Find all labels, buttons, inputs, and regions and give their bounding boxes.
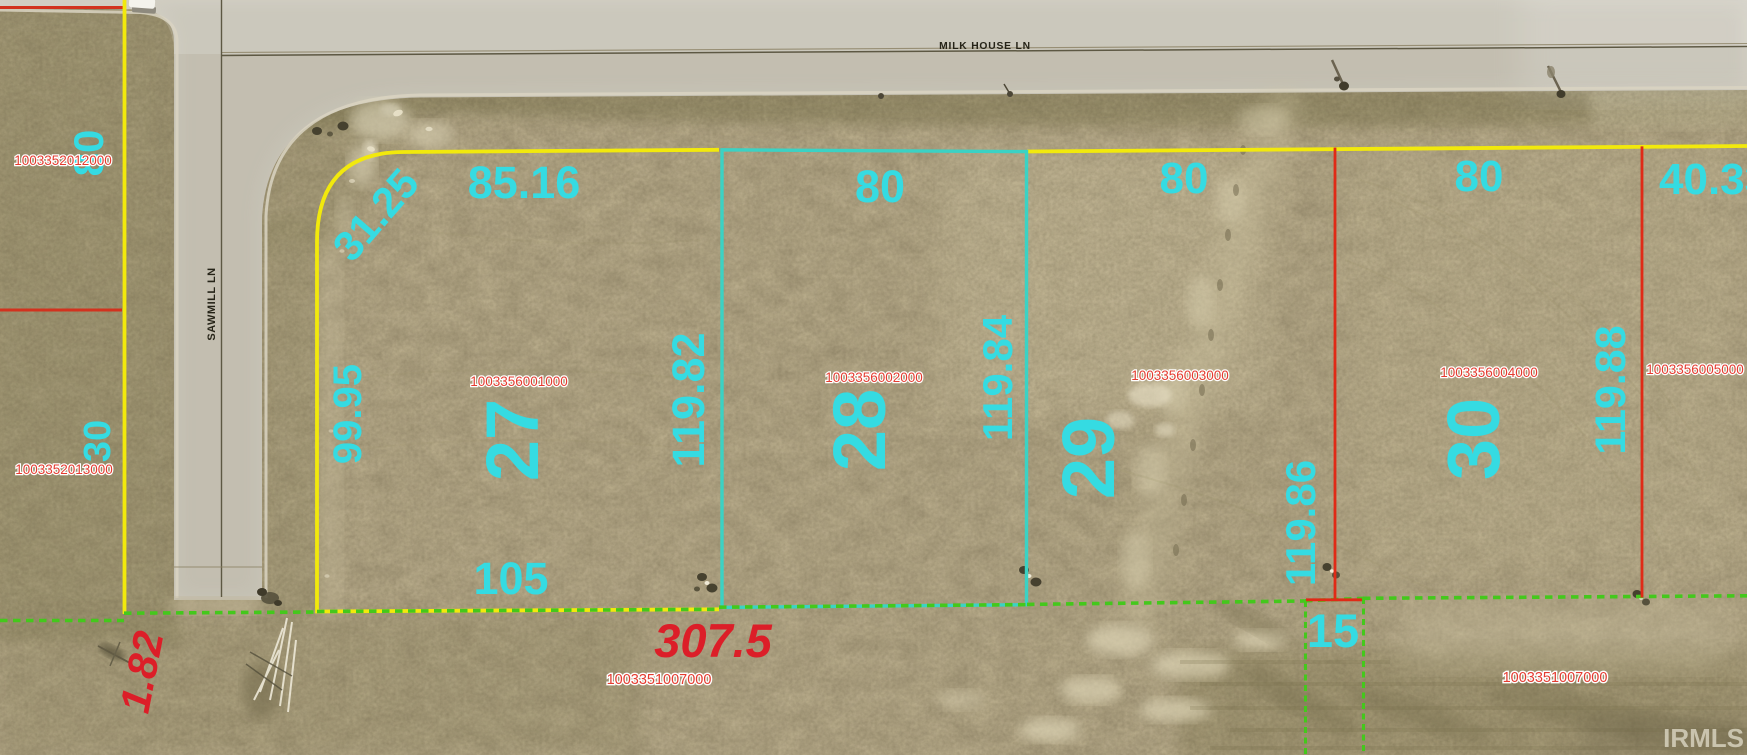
svg-text:MILK HOUSE LN: MILK HOUSE LN [939, 41, 1031, 52]
svg-text:1003356003000: 1003356003000 [1131, 368, 1229, 383]
svg-text:1003356001000: 1003356001000 [470, 374, 568, 389]
svg-text:1003351007000: 1003351007000 [607, 672, 712, 688]
svg-text:119.84: 119.84 [974, 314, 1021, 441]
svg-text:1003356005000: 1003356005000 [1646, 362, 1744, 377]
svg-text:28: 28 [818, 389, 901, 471]
svg-text:307.5: 307.5 [654, 614, 772, 667]
svg-text:1003356002000: 1003356002000 [825, 370, 923, 385]
svg-text:99.95: 99.95 [326, 364, 370, 464]
svg-text:80: 80 [1160, 154, 1209, 203]
svg-text:SAWMILL LN: SAWMILL LN [206, 267, 218, 340]
svg-text:80: 80 [855, 161, 905, 212]
svg-text:IRMLS: IRMLS [1663, 723, 1744, 753]
svg-text:15: 15 [1307, 604, 1359, 657]
svg-text:1003351007000: 1003351007000 [1503, 670, 1608, 686]
svg-text:40.33: 40.33 [1659, 155, 1747, 204]
svg-text:80: 80 [1455, 152, 1504, 201]
svg-text:85.16: 85.16 [468, 157, 581, 208]
svg-text:105: 105 [473, 553, 548, 604]
svg-text:119.82: 119.82 [663, 332, 714, 467]
svg-text:30: 30 [77, 420, 119, 462]
svg-text:27: 27 [471, 399, 554, 481]
svg-text:1003352012000: 1003352012000 [14, 153, 112, 168]
svg-text:30: 30 [1432, 398, 1515, 480]
svg-text:29: 29 [1047, 417, 1130, 499]
svg-text:119.86: 119.86 [1277, 460, 1324, 586]
svg-text:1003356004000: 1003356004000 [1440, 365, 1538, 380]
svg-text:1003352013000: 1003352013000 [15, 462, 113, 477]
svg-text:119.88: 119.88 [1587, 325, 1635, 454]
